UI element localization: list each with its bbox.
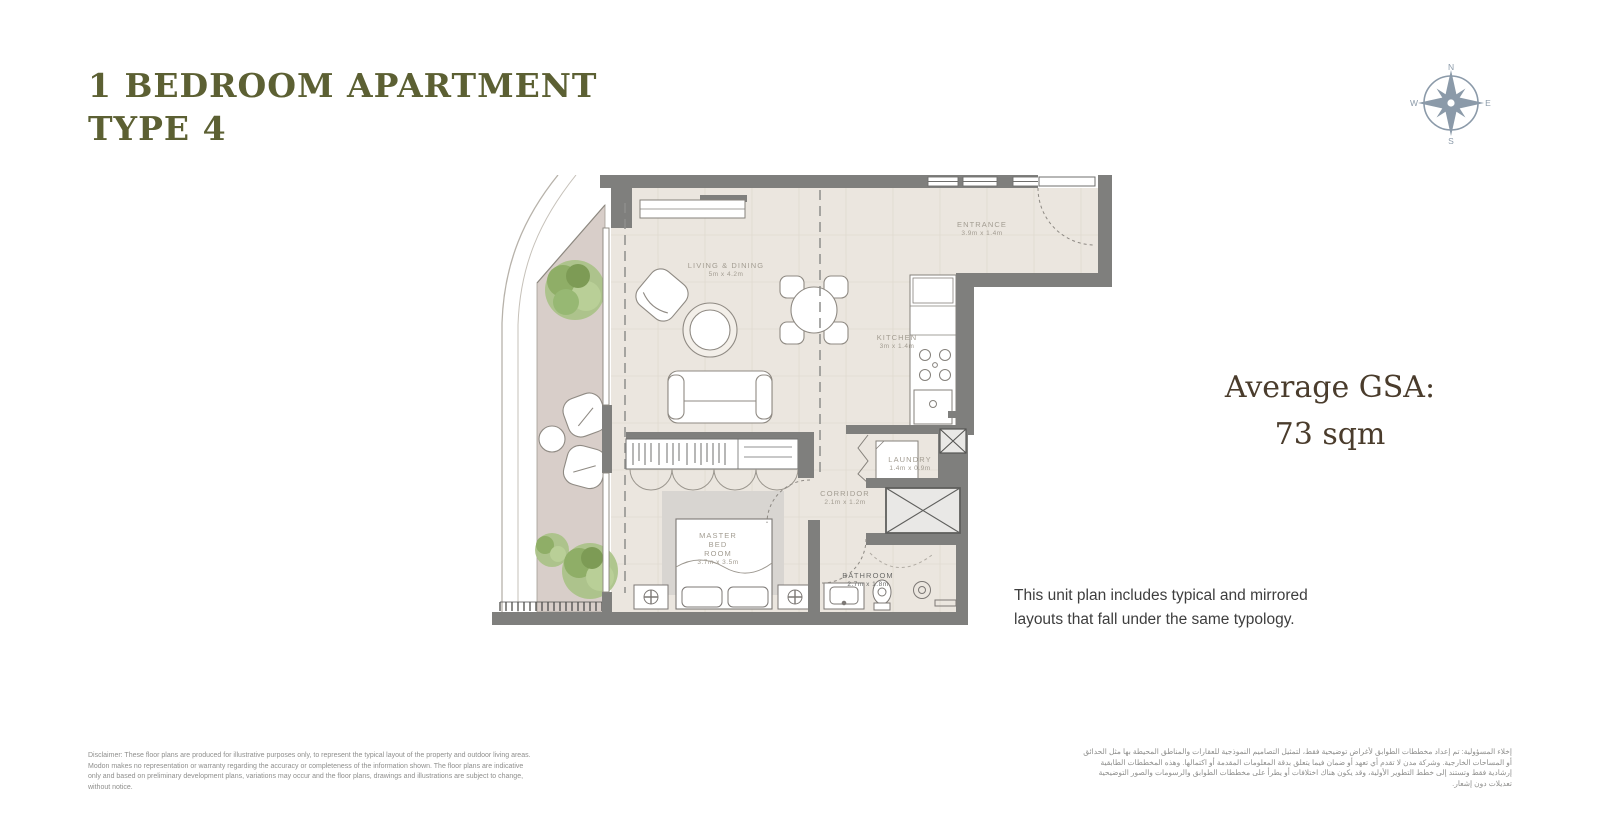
- duct-icon: [940, 429, 966, 453]
- sofa: [668, 371, 772, 423]
- page-title-line2: TYPE 4: [88, 107, 597, 150]
- compass-e-label: E: [1485, 98, 1491, 108]
- washer-icon: [876, 441, 918, 479]
- tree-icon: [562, 543, 618, 599]
- average-gsa: Average GSA: 73 sqm: [1180, 364, 1480, 458]
- pillow: [728, 587, 768, 607]
- compass-s-label: S: [1448, 136, 1454, 146]
- tree-icon: [545, 260, 605, 320]
- kitchen-counter: [910, 275, 957, 433]
- compass-icon: N E S W: [1404, 56, 1498, 150]
- compass-rose-icon: N E S W: [1404, 56, 1498, 150]
- page-title-line1: 1 BEDROOM APARTMENT: [88, 64, 597, 107]
- typology-note-line1: This unit plan includes typical and mirr…: [1014, 584, 1334, 608]
- compass-n-label: N: [1448, 62, 1454, 72]
- page-title: 1 BEDROOM APARTMENT TYPE 4: [88, 64, 597, 150]
- pillow: [682, 587, 722, 607]
- gsa-value: 73 sqm: [1180, 411, 1480, 458]
- nightstand: [634, 585, 668, 609]
- compass-w-label: W: [1410, 98, 1418, 108]
- shaft: [886, 488, 960, 533]
- brochure-page: 1 BEDROOM APARTMENT TYPE 4 N E S W: [0, 0, 1600, 834]
- typology-note-line2: layouts that fall under the same typolog…: [1014, 608, 1334, 632]
- coffee-table: [690, 310, 730, 350]
- nightstand: [778, 585, 812, 609]
- disclaimer-arabic: إخلاء المسؤولية: تم إعداد مخططات الطوابق…: [1082, 747, 1512, 789]
- gsa-label: Average GSA:: [1180, 364, 1480, 411]
- toilet-icon: [873, 580, 891, 610]
- floor-plan-drawing: [490, 175, 1115, 625]
- windows: [928, 177, 1040, 186]
- typology-note: This unit plan includes typical and mirr…: [1014, 584, 1334, 631]
- floor-plan: LIVING & DINING 5m x 4.2m ENTRANCE 3.9m …: [490, 175, 1115, 625]
- disclaimer-english: Disclaimer: These floor plans are produc…: [88, 751, 536, 793]
